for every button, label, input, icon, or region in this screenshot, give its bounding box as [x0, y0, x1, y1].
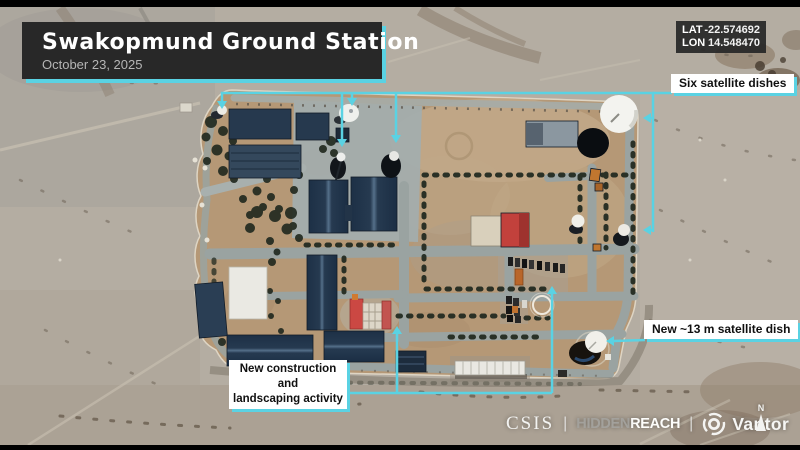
csis-logo: CSIS [506, 413, 554, 435]
north-label: N [752, 404, 770, 413]
lon-label: LON [682, 37, 705, 50]
annotated-satellite-graphic: Swakopmund Ground Station October 23, 20… [0, 0, 800, 450]
ground-station-compound [193, 90, 650, 384]
page-title: Swakopmund Ground Station [42, 30, 382, 55]
latitude-row: LAT -22.574692 [682, 24, 760, 37]
north-indicator: N [752, 404, 770, 431]
longitude-row: LON 14.548470 [682, 37, 760, 50]
callout-construction-line2: landscaping activity [229, 392, 347, 407]
hidden-reach-logo: HIDDEN REACH [576, 416, 680, 432]
callout-construction: New construction and landscaping activit… [229, 360, 347, 409]
callout-new-dish: New ~13 m satellite dish [644, 320, 798, 339]
north-arrow-icon [756, 414, 766, 431]
reach-wordmark: REACH [630, 416, 680, 432]
lat-label: LAT [682, 24, 703, 37]
vantor-rings-icon [702, 412, 726, 436]
truck [455, 361, 527, 379]
coordinates-card: LAT -22.574692 LON 14.548470 [676, 21, 766, 53]
vantor-logo: Vantor [702, 412, 789, 436]
title-card: Swakopmund Ground Station October 23, 20… [22, 22, 382, 79]
lon-value: 14.548470 [708, 37, 760, 50]
logo-separator: | [563, 415, 567, 433]
hidden-wordmark: HIDDEN [576, 416, 630, 432]
lat-value: -22.574692 [704, 24, 760, 37]
callout-six-dishes: Six satellite dishes [671, 74, 794, 93]
logo-separator: | [689, 415, 693, 433]
image-date: October 23, 2025 [42, 57, 382, 72]
callout-construction-line1: New construction and [229, 362, 347, 392]
footer-logos: CSIS | HIDDEN REACH | Vantor [506, 411, 789, 437]
